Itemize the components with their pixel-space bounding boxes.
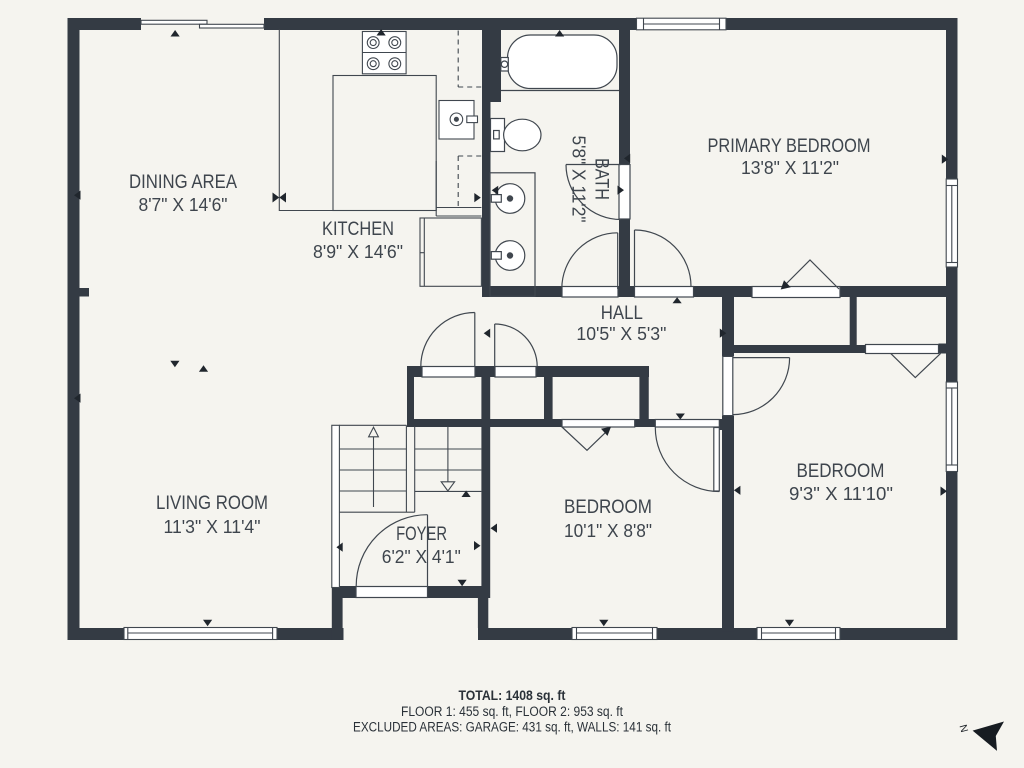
svg-text:10'5" X 5'3": 10'5" X 5'3" — [576, 323, 666, 344]
svg-text:BEDROOM: BEDROOM — [564, 497, 652, 518]
svg-text:5'8" X 11'2": 5'8" X 11'2" — [569, 136, 590, 223]
svg-text:HALL: HALL — [601, 303, 643, 324]
svg-text:LIVING ROOM: LIVING ROOM — [156, 493, 268, 514]
svg-text:BEDROOM: BEDROOM — [797, 461, 885, 482]
svg-text:KITCHEN: KITCHEN — [322, 219, 394, 240]
svg-text:TOTAL: 1408 sq. ft: TOTAL: 1408 sq. ft — [459, 688, 566, 703]
svg-text:8'7" X 14'6": 8'7" X 14'6" — [139, 194, 228, 215]
svg-text:9'3" X 11'10": 9'3" X 11'10" — [789, 483, 893, 504]
svg-text:6'2" X 4'1": 6'2" X 4'1" — [382, 546, 461, 567]
svg-text:11'3" X 11'4": 11'3" X 11'4" — [164, 516, 261, 537]
svg-text:BATH: BATH — [591, 158, 612, 200]
svg-text:PRIMARY BEDROOM: PRIMARY BEDROOM — [708, 136, 871, 157]
svg-text:FOYER: FOYER — [396, 524, 447, 545]
svg-text:DINING AREA: DINING AREA — [129, 172, 237, 193]
svg-text:EXCLUDED AREAS: GARAGE: 431 sq: EXCLUDED AREAS: GARAGE: 431 sq. ft, WALL… — [353, 720, 671, 735]
svg-text:8'9" X 14'6": 8'9" X 14'6" — [313, 241, 403, 262]
svg-text:FLOOR 1: 455 sq. ft, FLOOR 2:: FLOOR 1: 455 sq. ft, FLOOR 2: 953 sq. ft — [401, 704, 623, 719]
svg-text:10'1" X 8'8": 10'1" X 8'8" — [564, 520, 652, 541]
svg-text:13'8" X 11'2": 13'8" X 11'2" — [741, 157, 839, 178]
